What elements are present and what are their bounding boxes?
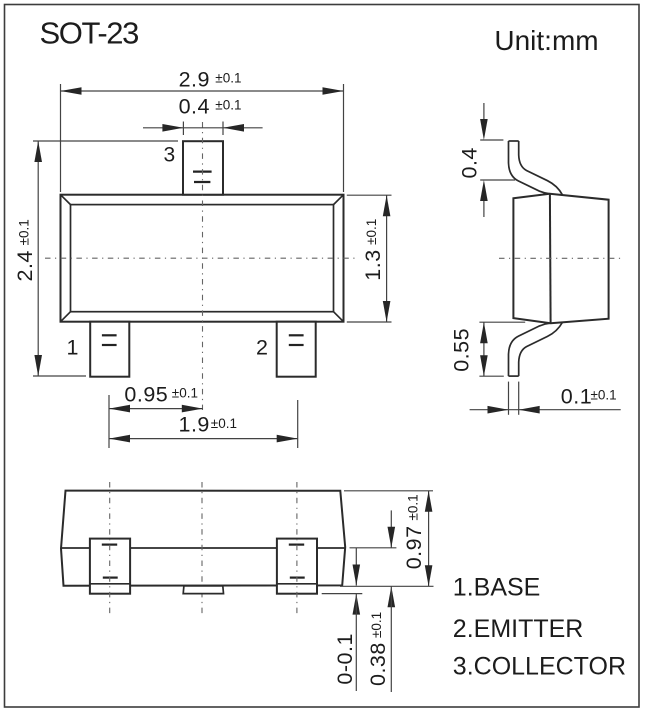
- svg-text:2.EMITTER: 2.EMITTER: [453, 615, 584, 643]
- svg-text:3.COLLECTOR: 3.COLLECTOR: [453, 653, 626, 681]
- svg-text:±0.1: ±0.1: [215, 98, 241, 113]
- svg-text:±0.1: ±0.1: [17, 219, 32, 245]
- svg-text:0.1: 0.1: [561, 384, 592, 408]
- svg-text:±0.1: ±0.1: [406, 494, 421, 520]
- svg-text:±0.1: ±0.1: [369, 612, 384, 638]
- svg-text:0.55: 0.55: [450, 328, 474, 372]
- svg-text:0.4: 0.4: [179, 95, 210, 119]
- svg-text:±0.1: ±0.1: [591, 388, 617, 403]
- svg-text:1.3: 1.3: [361, 249, 385, 280]
- svg-text:2.9: 2.9: [179, 68, 210, 92]
- svg-text:3: 3: [164, 144, 176, 167]
- svg-text:Unit:mm: Unit:mm: [494, 25, 598, 56]
- svg-text:±0.1: ±0.1: [215, 70, 241, 85]
- svg-text:2: 2: [256, 336, 268, 360]
- svg-text:1.9: 1.9: [179, 413, 210, 437]
- svg-text:SOT-23: SOT-23: [40, 16, 139, 51]
- svg-text:0.95: 0.95: [124, 382, 168, 406]
- svg-text:0-0.1: 0-0.1: [333, 633, 357, 685]
- svg-text:0.38: 0.38: [366, 642, 390, 686]
- svg-text:1.BASE: 1.BASE: [453, 574, 541, 602]
- svg-text:±0.1: ±0.1: [172, 386, 198, 401]
- svg-text:0.4: 0.4: [458, 147, 482, 178]
- svg-text:±0.1: ±0.1: [211, 416, 237, 431]
- svg-text:0.97: 0.97: [402, 525, 426, 569]
- svg-text:2.4: 2.4: [13, 250, 37, 281]
- svg-text:±0.1: ±0.1: [364, 219, 379, 245]
- svg-text:1: 1: [67, 336, 79, 360]
